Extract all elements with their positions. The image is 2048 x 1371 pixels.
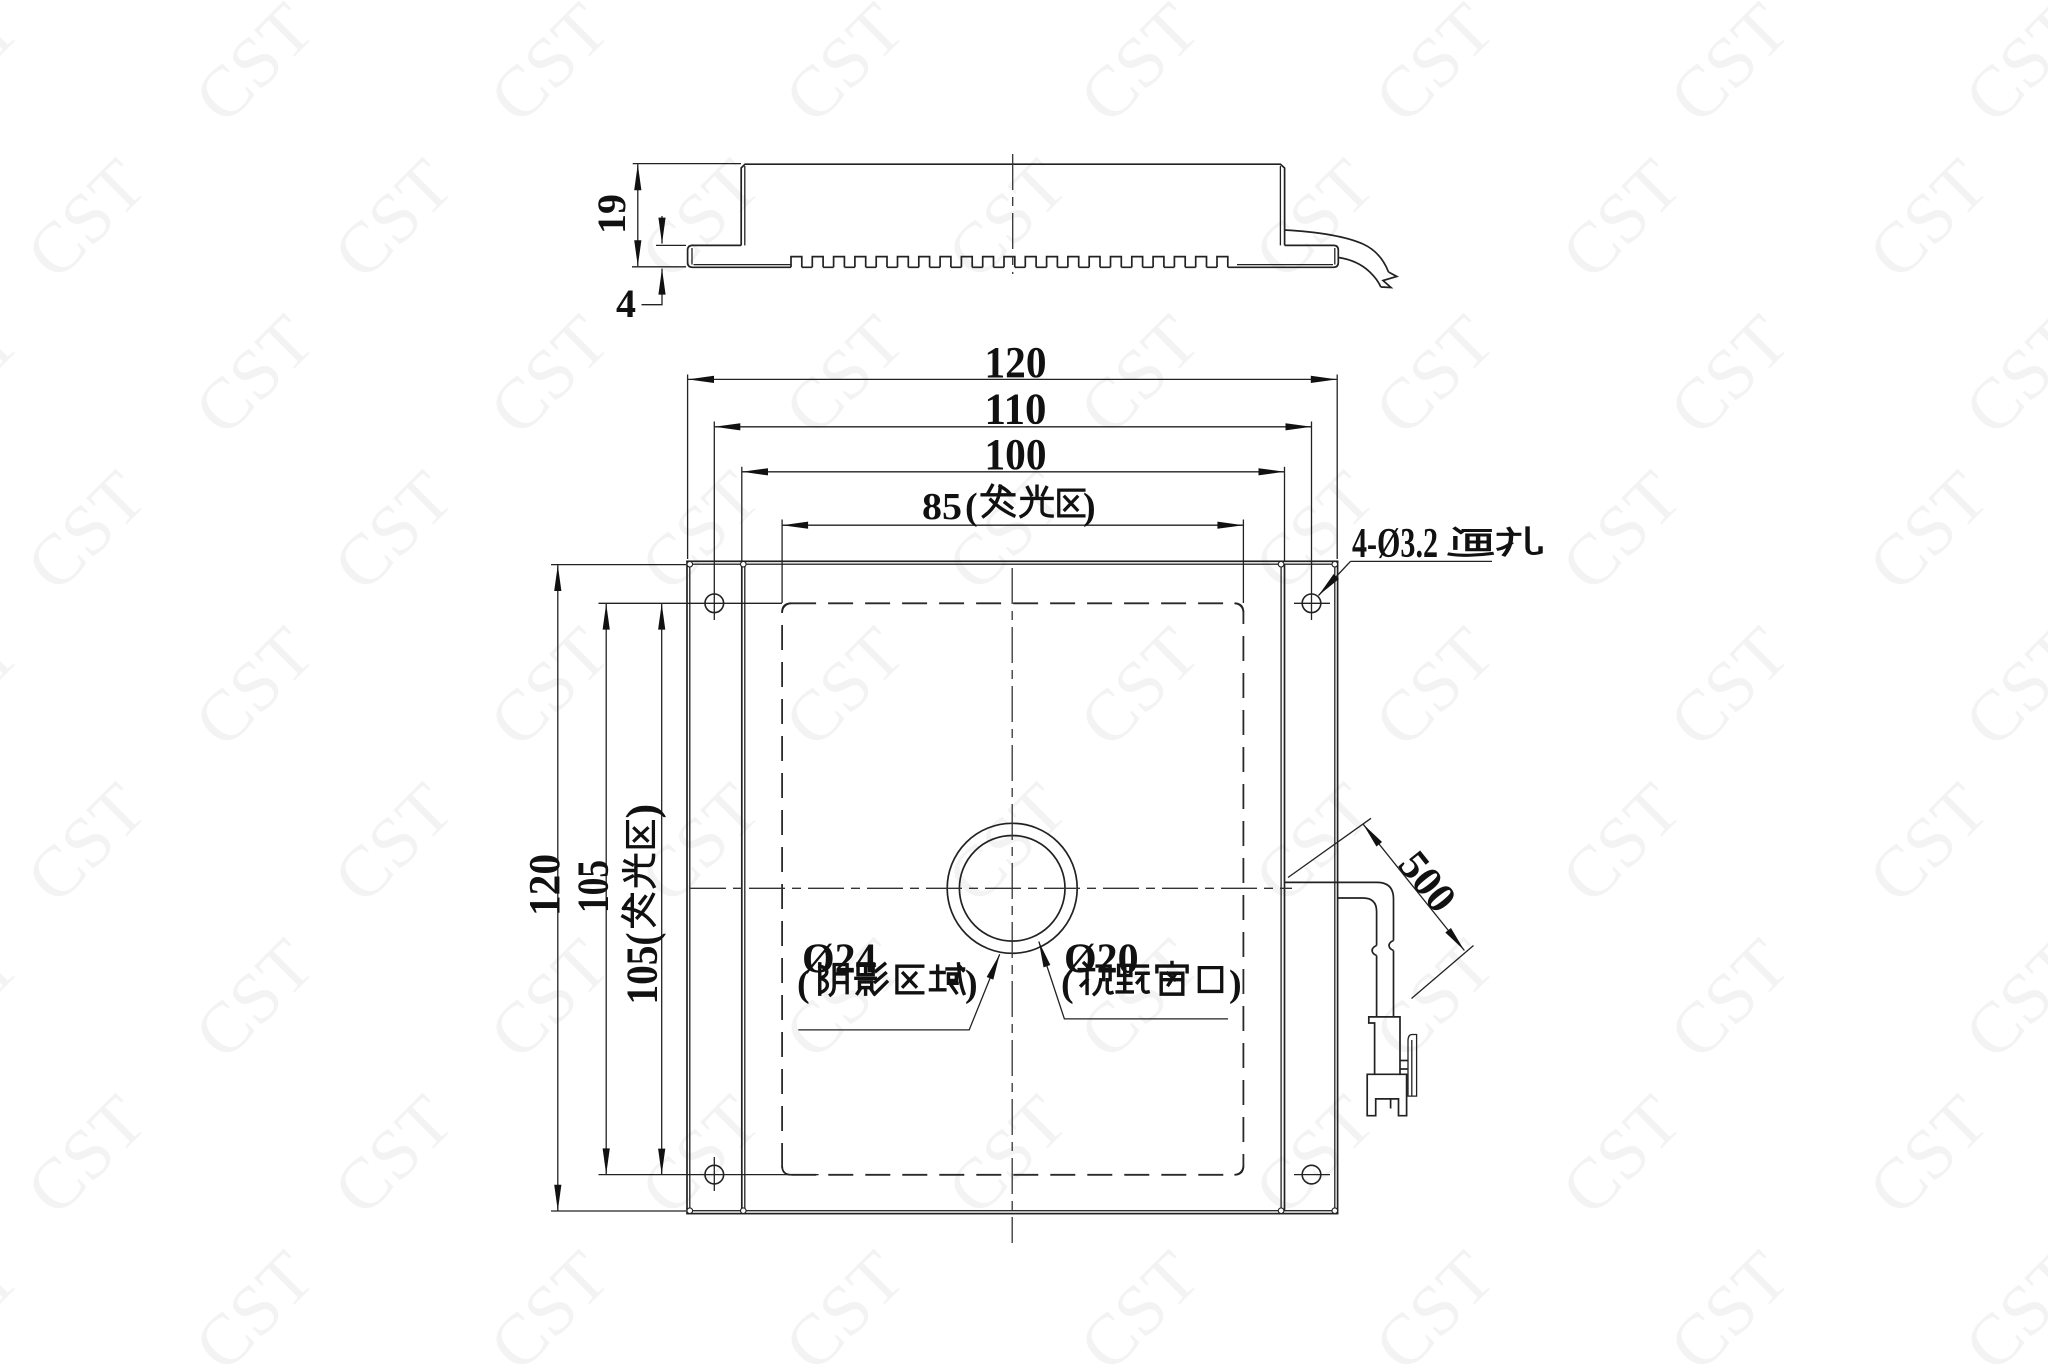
svg-text:(: (	[965, 486, 978, 528]
svg-text:): )	[1083, 486, 1096, 528]
svg-text:105: 105	[569, 860, 618, 913]
svg-text:120: 120	[520, 854, 569, 916]
svg-text:): )	[618, 804, 667, 819]
svg-text:110: 110	[985, 384, 1047, 433]
svg-text:4-Ø3.2: 4-Ø3.2	[1352, 521, 1438, 567]
svg-text:120: 120	[985, 338, 1047, 387]
svg-text:(: (	[1061, 963, 1074, 1005]
svg-text:105(: 105(	[618, 933, 667, 1005]
svg-text:100: 100	[985, 430, 1047, 479]
svg-text:19: 19	[589, 194, 634, 234]
svg-text:): )	[965, 963, 978, 1005]
svg-text:85: 85	[922, 486, 962, 528]
svg-text:4: 4	[616, 281, 636, 326]
svg-text:): )	[1229, 963, 1242, 1005]
svg-text:(: (	[797, 963, 810, 1005]
